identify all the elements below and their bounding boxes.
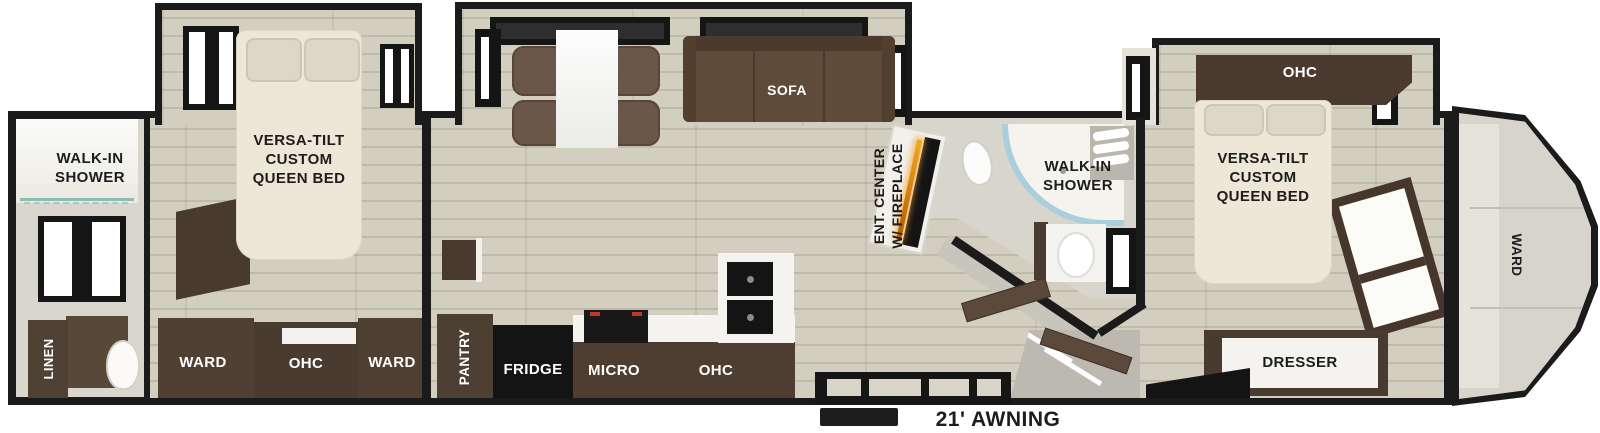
- rear-toilet: [106, 340, 140, 390]
- rear-ohc-label: OHC: [254, 355, 358, 374]
- rear-bed-label: VERSA-TILT CUSTOM QUEEN BED: [227, 132, 371, 188]
- rear-shower-label: WALK-IN SHOWER: [30, 150, 150, 188]
- step-tread: [827, 379, 861, 396]
- awning-label: 21' AWNING: [918, 407, 1078, 433]
- cap-ward-label: WARD: [1508, 220, 1524, 290]
- dinette-table: [556, 30, 618, 148]
- pantry-label: PANTRY: [457, 317, 473, 397]
- kitchen-sink: [727, 262, 773, 334]
- bath-vanity: [1046, 224, 1106, 282]
- sofa: [683, 36, 895, 122]
- front-ohc-label: OHC: [1260, 64, 1340, 83]
- rear-bath-window: [38, 216, 126, 302]
- front-cap: [1452, 106, 1598, 406]
- dinette-chair: [512, 100, 558, 146]
- kitchen-peninsula-counter: [718, 253, 794, 343]
- sofa-back: [683, 36, 895, 51]
- floorplan: WALK-IN SHOWER LINEN VERSA-TILT CUSTOM Q…: [0, 0, 1600, 433]
- dinette-chair: [512, 46, 558, 96]
- fold-out-step: [820, 408, 898, 426]
- step-tread: [977, 379, 1001, 396]
- rear-shower-glass-trim: [24, 202, 128, 206]
- pantry-upper-cabinet: [442, 240, 476, 280]
- dinette-chair: [616, 100, 660, 146]
- step-tread: [929, 379, 969, 396]
- rear-ohc-countertop: [282, 328, 356, 344]
- entry-steps: [815, 372, 1011, 404]
- cooktop: [584, 310, 648, 343]
- fridge-label: FRIDGE: [491, 361, 575, 380]
- micro-label: MICRO: [574, 362, 654, 381]
- rear-ward-right-label: WARD: [356, 354, 428, 373]
- pillow: [304, 38, 360, 82]
- mid-bath-window: [1106, 228, 1136, 294]
- front-bed-label: VERSA-TILT CUSTOM QUEEN BED: [1190, 150, 1336, 206]
- dinette-chair: [616, 46, 660, 96]
- rear-slide-window-right: [380, 44, 414, 108]
- pillow: [246, 38, 302, 82]
- front-wing-window: [1126, 56, 1150, 120]
- rear-slide-window-left: [183, 26, 239, 110]
- rear-ward-left-label: WARD: [155, 354, 251, 373]
- pillow: [1266, 104, 1326, 136]
- rear-shower-glass: [20, 198, 134, 201]
- kitchen-wall-edge: [476, 238, 482, 282]
- ent-center-label: ENT. CENTER W/ FIREPLACE: [870, 121, 908, 271]
- pillow: [1204, 104, 1264, 136]
- living-slide-window-left: [475, 29, 501, 107]
- front-wardrobe: [1459, 113, 1591, 399]
- sofa-label: SOFA: [737, 82, 837, 100]
- linen-label: LINEN: [41, 324, 57, 394]
- bath-bedroom-wall: [1136, 118, 1145, 308]
- step-tread: [869, 379, 921, 396]
- vanity-sink: [1057, 232, 1095, 278]
- cap-wall: [1444, 111, 1458, 405]
- kitchen-ohc-label: OHC: [676, 362, 756, 381]
- dresser-label: DRESSER: [1230, 354, 1370, 373]
- mid-shower-label: WALK-IN SHOWER: [1018, 158, 1138, 196]
